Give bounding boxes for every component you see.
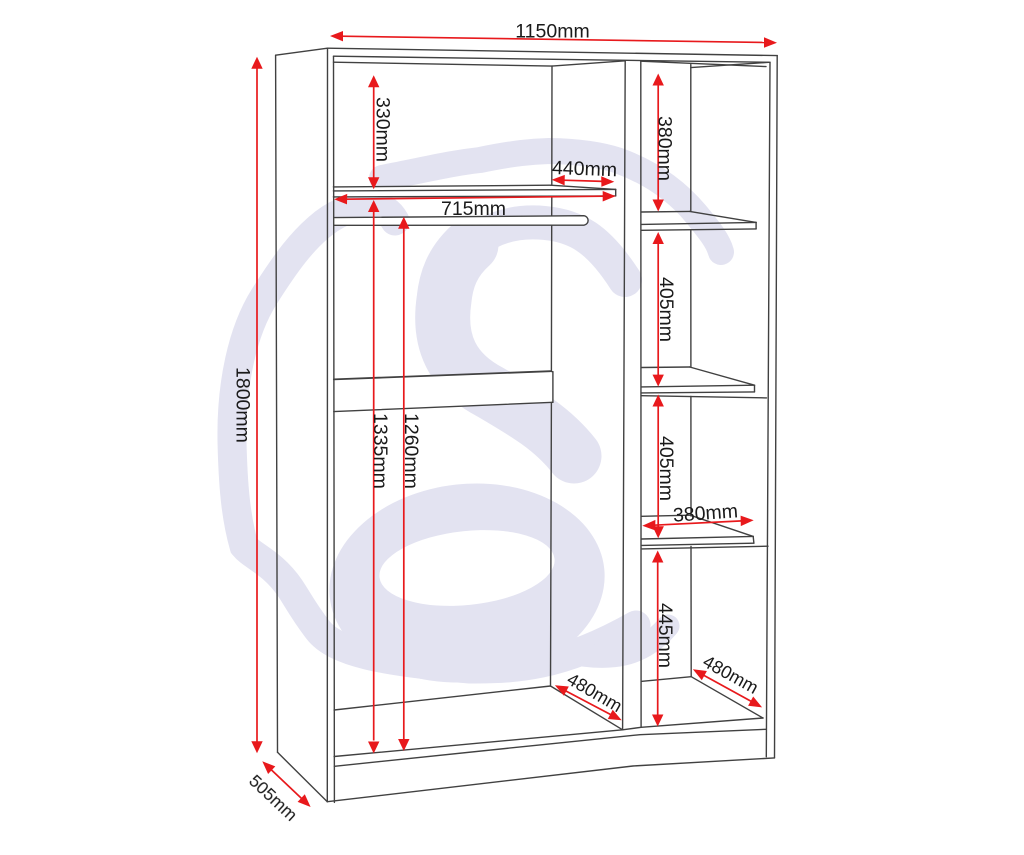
svg-text:380mm: 380mm <box>654 116 676 181</box>
svg-text:1800mm: 1800mm <box>232 367 254 443</box>
svg-text:1150mm: 1150mm <box>515 21 589 43</box>
svg-text:405mm: 405mm <box>655 436 677 501</box>
svg-text:380mm: 380mm <box>672 500 738 526</box>
svg-text:445mm: 445mm <box>654 603 676 668</box>
svg-text:505mm: 505mm <box>245 771 301 825</box>
svg-text:715mm: 715mm <box>441 198 506 220</box>
svg-text:440mm: 440mm <box>552 157 618 181</box>
svg-text:1260mm: 1260mm <box>400 413 422 489</box>
svg-text:405mm: 405mm <box>655 277 677 342</box>
svg-text:330mm: 330mm <box>372 97 394 162</box>
svg-text:1335mm: 1335mm <box>369 413 391 489</box>
